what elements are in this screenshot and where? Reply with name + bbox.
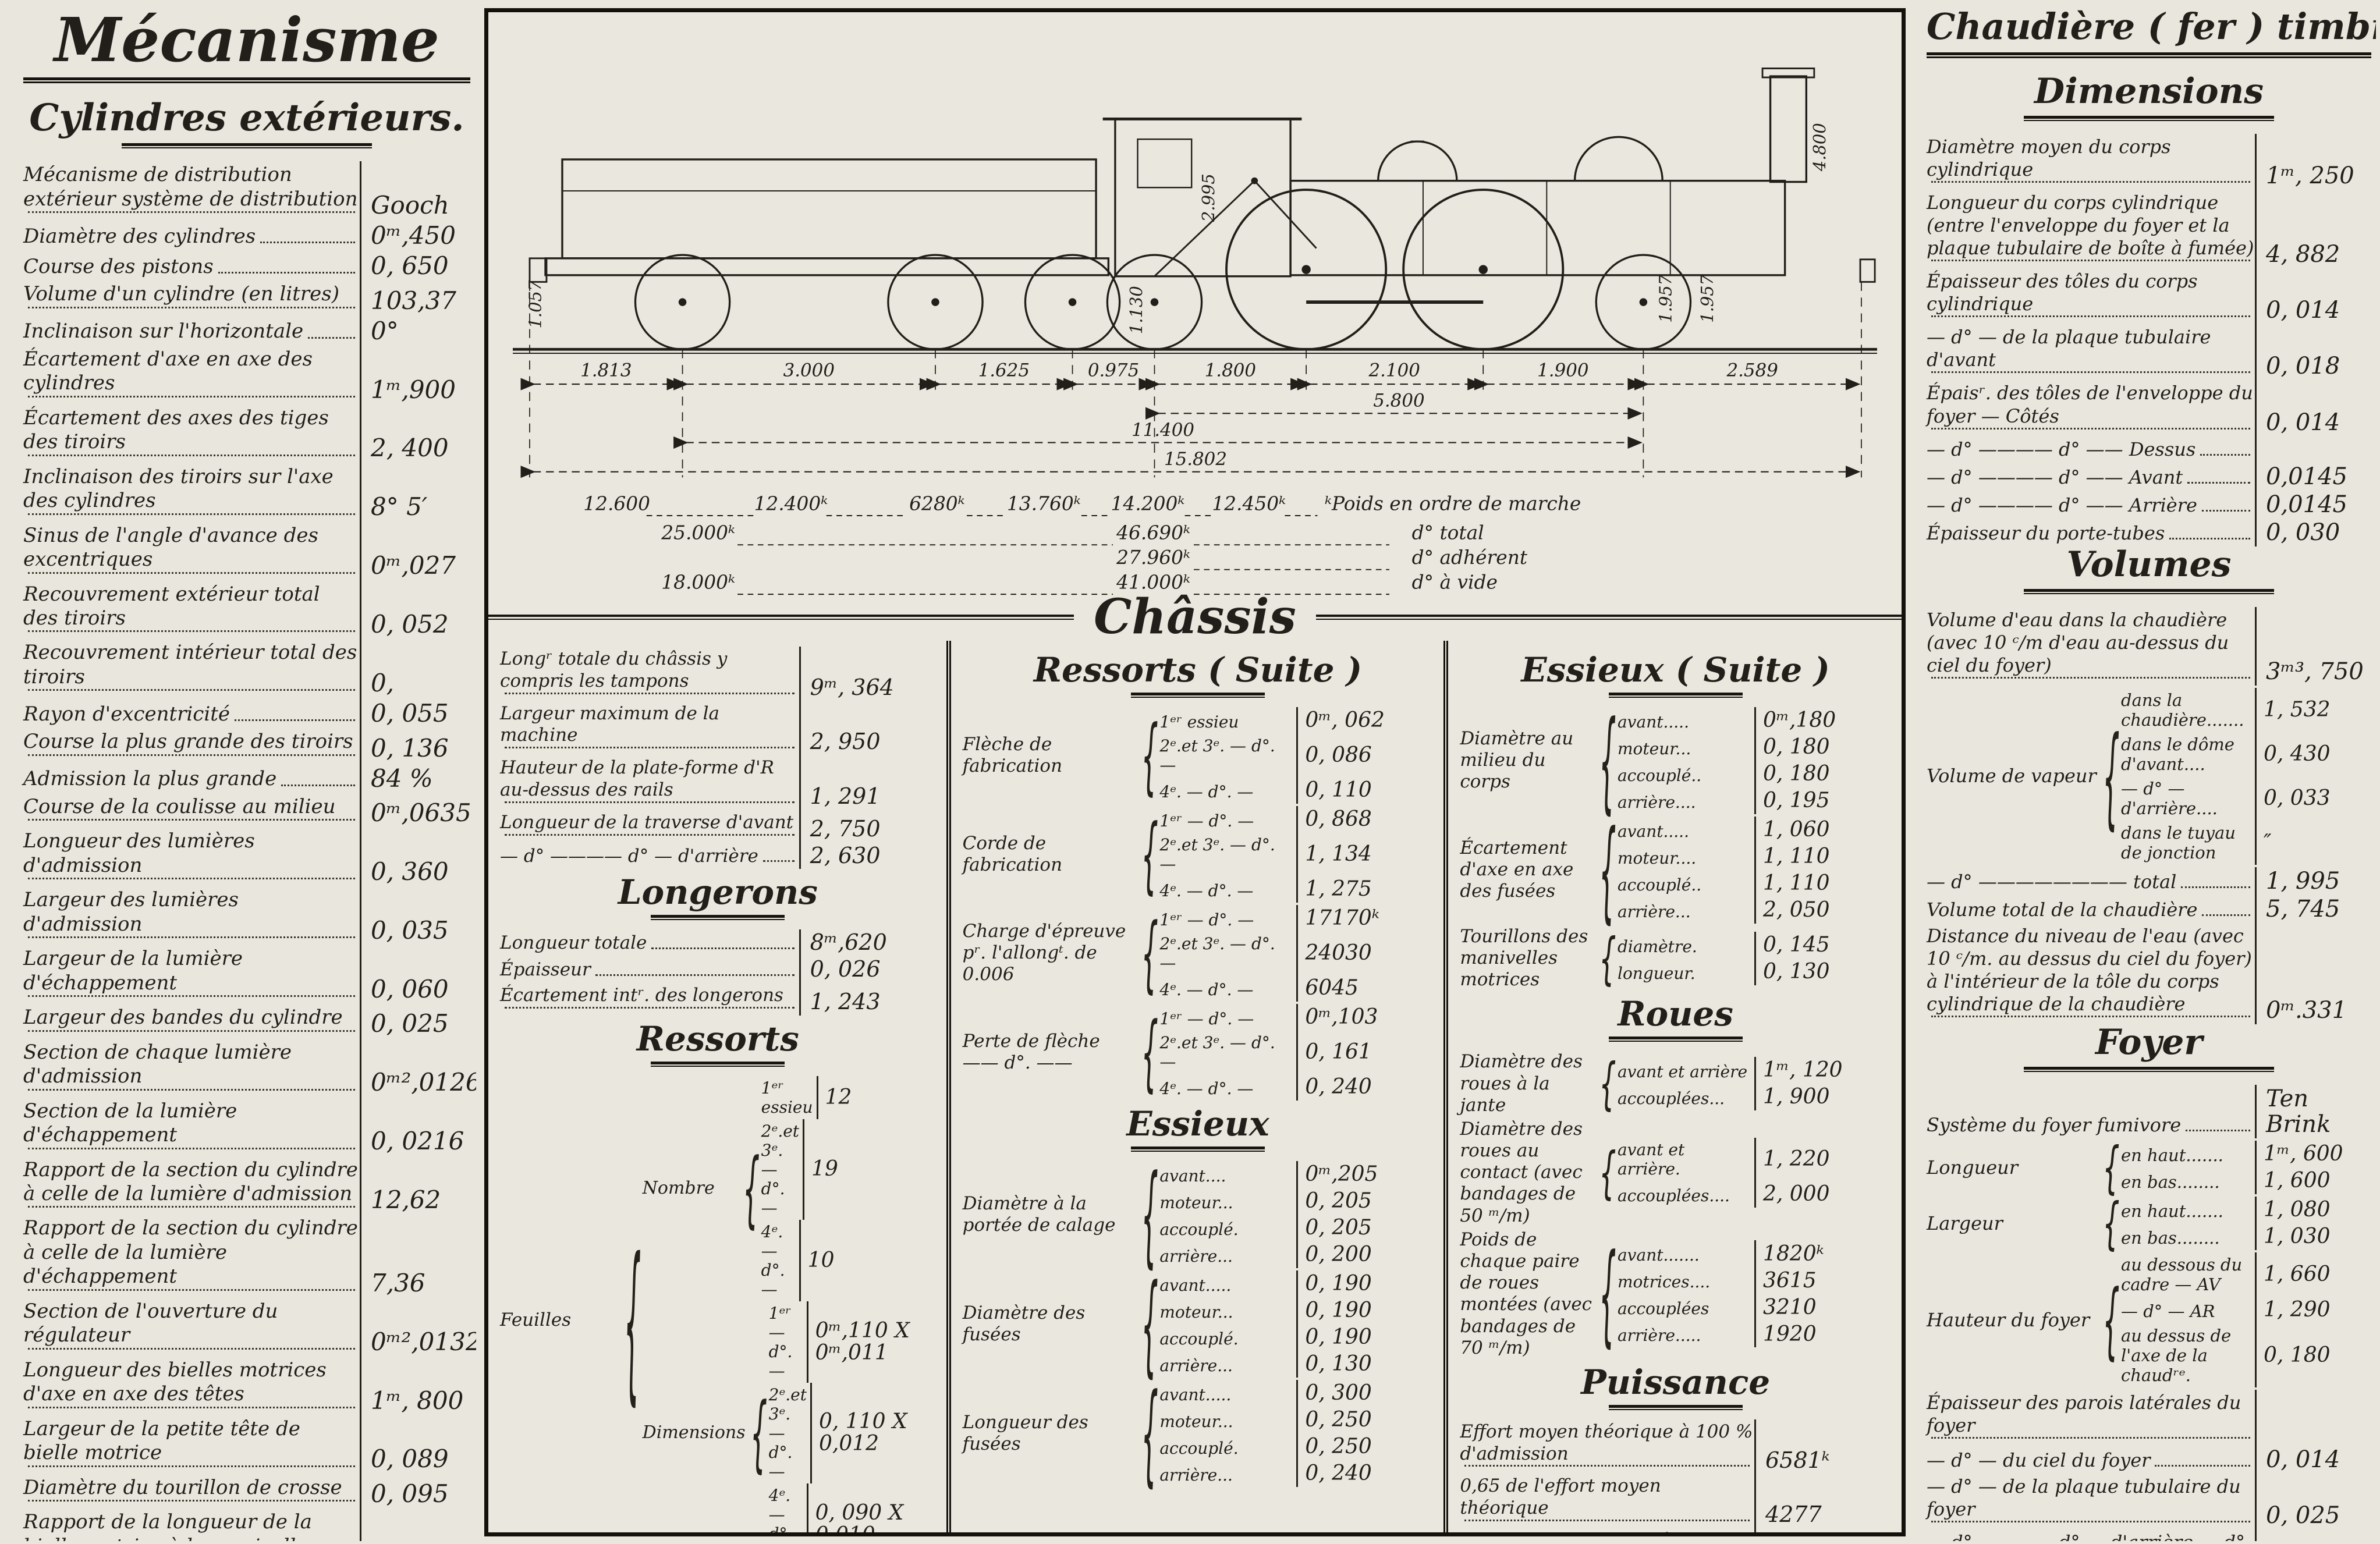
row-value: 7,36 — [360, 1215, 470, 1297]
table-row: Longueur des lumières d'admission 0, 360 — [23, 828, 470, 886]
table-row: Hauteur de la plate-forme d'R au-dessus … — [500, 755, 936, 810]
row-value: 0, 014 — [2255, 268, 2371, 324]
dotted-leader — [763, 860, 794, 862]
table-row: Épaisseur 0, 026 — [500, 956, 936, 983]
group-label: Diamètre des roues à la jante — [1460, 1051, 1598, 1116]
row-value: 8° 5′ — [360, 463, 470, 522]
row-value: 0, — [360, 639, 470, 698]
row-label: Longueur totale — [500, 932, 647, 954]
row-value: 0ᵐ,450 — [360, 220, 470, 250]
row-label: — d° ———— d° —— Avant — [1927, 466, 2183, 489]
brace-item: 4ᵉ. — d°. —0, 110 — [1159, 777, 1433, 804]
row-value — [2255, 1390, 2371, 1446]
brace-item: accouplées3210 — [1618, 1294, 1891, 1321]
brace-item: 2ᵉ.et 3ᵉ. — d°. —1, 134 — [1159, 833, 1433, 876]
group-label: Flèche de fabrication — [963, 734, 1140, 777]
row-value: 5, 53 — [360, 1508, 470, 1541]
brace-item: accouplé..0, 180 — [1618, 761, 1891, 787]
table-row: Effort moyen théorique à 100 % d'admissi… — [1460, 1419, 1891, 1474]
group-label: Hauteur du foyer — [1927, 1309, 2101, 1331]
row-value: 0, 035 — [360, 886, 470, 945]
weights-note: ᵏPoids en ordre de marche — [1325, 492, 1581, 514]
chassis-col-roues-puissance: Essieux ( Suite ) Diamètre au milieu du … — [1443, 641, 1902, 1536]
dim-label: 0.975 — [1088, 360, 1139, 381]
divider — [1316, 615, 1902, 620]
brace-icon: { — [1598, 805, 1618, 934]
table-row: — d° ———— d° —— Dessus — [1927, 436, 2371, 463]
row-label: Course des pistons — [23, 255, 214, 279]
dotted-leader — [28, 396, 355, 397]
row-value: 0, 0216 — [360, 1098, 470, 1156]
brace-icon: { — [1598, 925, 1618, 991]
ressorts-suite-title: Ressorts ( Suite ) — [963, 652, 1434, 688]
table-row: Diamètre moyen du corps cylindrique 1ᵐ, … — [1927, 134, 2371, 190]
mecanisme-table: Mécanisme de distribution extérieur syst… — [23, 161, 470, 1541]
brace-icon: { — [1598, 1230, 1618, 1358]
dotted-leader — [28, 1089, 355, 1091]
calage-group: Diamètre à la portée de calage { avant..… — [963, 1161, 1434, 1268]
dotted-leader — [28, 630, 355, 632]
brace-item: dans le tuyau de jonction″ — [2121, 821, 2371, 865]
group-label: Dimensions — [643, 1422, 749, 1443]
table-row: Longueur de la traverse d'avant 2, 750 — [500, 810, 936, 843]
brace-item: accouplées...1, 900 — [1618, 1084, 1891, 1110]
dotted-leader — [1931, 428, 2250, 430]
vertical-dim: 1.130 — [1126, 286, 1146, 334]
volumes-title: Volumes — [1927, 546, 2371, 583]
fusees-diam-group: Diamètre des fusées { avant.....0, 190mo… — [963, 1270, 1434, 1378]
table-row: Épaisseur du porte-tubes 0, 030 — [1927, 519, 2371, 546]
row-label: Recouvrement intérieur total des tiroirs — [23, 641, 360, 689]
row-label: Largeur des bandes du cylindre — [23, 1006, 343, 1030]
row-label: — d° ———— d° —— Dessus — [1927, 438, 2195, 461]
row-label: Volume d'eau dans la chaudière (avec 10 … — [1927, 609, 2255, 677]
dotted-leader — [2202, 510, 2250, 512]
row-label: — d° ———— d° —— Arrière — [1927, 494, 2197, 517]
brace-item: arrière.....1920 — [1618, 1321, 1891, 1347]
table-row: Inclinaison sur l'horizontale 0° — [23, 315, 470, 346]
group-label: Poids de chaque paire de roues montées (… — [1460, 1229, 1598, 1359]
dim-total: 15.802 — [1164, 449, 1227, 470]
group-label: Diamètre à la portée de calage — [963, 1193, 1140, 1236]
dotted-leader — [28, 936, 355, 938]
brace-item: au dessus de l'axe de la chaudʳᵉ.0, 180 — [2121, 1323, 2371, 1387]
chassis-col-ressorts-essieux: Ressorts ( Suite ) Flèche de fabrication… — [946, 641, 1444, 1536]
row-label: Largeur de la petite tête de bielle motr… — [23, 1417, 360, 1465]
row-label: — d° — du ciel du foyer — [1927, 1449, 2150, 1472]
axle-weight: 12.600 — [583, 492, 650, 514]
tourillons-group: Tourillons des manivelles motrices { dia… — [1460, 926, 1891, 991]
row-value: 0,0145 — [2255, 463, 2371, 491]
dotted-leader — [28, 513, 355, 515]
brace-icon: { — [623, 1220, 643, 1421]
brace-icon: { — [1598, 1050, 1618, 1116]
dotted-leader — [28, 1206, 355, 1208]
axle-weight: 6280ᵏ — [909, 492, 965, 514]
brace-item: 4ᵉ. — d°. —1, 275 — [1159, 876, 1433, 903]
divider — [2024, 1067, 2274, 1072]
row-value: 0, 025 — [2255, 1474, 2371, 1529]
table-row: Largeur maximum de la machine 2, 950 — [500, 701, 936, 756]
brace-item: 2ᵉ.et 3ᵉ. — d°. —24030 — [1159, 932, 1433, 975]
rear-buffer — [1860, 260, 1875, 282]
vertical-dim: 1.957 — [1697, 274, 1717, 322]
table-row: Sinus de l'angle d'avance des excentriqu… — [23, 522, 470, 581]
table-row: Épaisseur des parois latérales du foyer — [1927, 1390, 2371, 1446]
dotted-leader — [2169, 538, 2250, 539]
ressorts-title: Ressorts — [500, 1021, 936, 1057]
brace-item: moteur...0, 205 — [1159, 1188, 1433, 1215]
row-value: 0, 060 — [360, 945, 470, 1004]
dotted-leader — [28, 1407, 355, 1408]
brace-item: arrière...0, 200 — [1159, 1241, 1433, 1268]
row-value: 84 % — [360, 763, 470, 793]
brace-item: 1ᵉʳ — d°. —0ᵐ,103 — [1159, 1004, 1433, 1031]
dotted-leader — [28, 1289, 355, 1291]
brace-item: moteur....1, 110 — [1618, 843, 1891, 870]
jante-group: Diamètre des roues à la jante { avant et… — [1460, 1051, 1891, 1116]
longerons-title: Longerons — [500, 875, 936, 910]
dotted-leader — [2155, 1465, 2250, 1467]
weight-label: d° total — [1412, 522, 1484, 544]
row-label: Section de chaque lumière d'admission — [23, 1041, 360, 1089]
row-label: Rayon d'excentricité — [23, 702, 230, 726]
row-value: 0, 014 — [2255, 380, 2371, 436]
essieux-suite-title: Essieux ( Suite ) — [1460, 652, 1891, 688]
dotted-leader — [28, 211, 355, 213]
brace-icon: { — [2101, 1271, 2121, 1368]
tender-frame — [545, 258, 1108, 275]
row-label: Longueur des lumières d'admission — [23, 829, 360, 878]
group-label: Nombre — [643, 1178, 742, 1199]
row-label: Largeur maximum de la machine — [500, 703, 799, 747]
row-label: Longueur de la traverse d'avant — [500, 812, 793, 834]
dim-label: 1.813 — [580, 360, 632, 381]
vertical-dim: 1.957 — [1656, 274, 1676, 322]
row-value — [2255, 436, 2371, 463]
dotted-leader — [28, 1348, 355, 1350]
row-label: — d° — de la plaque tubulaire du foyer — [1927, 1475, 2255, 1521]
dotted-leader — [505, 693, 794, 694]
row-value: 4, 882 — [2255, 190, 2371, 268]
row-label: Sinus de l'angle d'avance des excentriqu… — [23, 524, 360, 572]
locomotive-drawing-svg: 1.813 3.000 1.625 0.975 1.800 2.100 1.90… — [488, 12, 1902, 597]
brace-item: avant.....0ᵐ,180 — [1618, 707, 1891, 734]
nombre-group: Nombre { 1ᵉʳ essieu122ᵉ.et 3ᵉ. — d°. —19… — [643, 1076, 936, 1301]
brace-item: 4ᵉ. — d°. —10 — [761, 1220, 936, 1301]
table-row: Largeur de la lumière d'échappement 0, 0… — [23, 945, 470, 1004]
brace-item: 2ᵉ.et 3ᵉ. — d°. —0, 086 — [1159, 734, 1433, 777]
table-row: — d° ———— d° — d'arrière 2, 630 — [500, 843, 936, 869]
dotted-leader — [595, 974, 794, 976]
row-value: 8ᵐ,620 — [799, 929, 936, 956]
group-label: Volume de vapeur — [1927, 765, 2101, 787]
table-row: Course des pistons 0, 650 — [23, 250, 470, 281]
brace-item: arrière...0, 130 — [1159, 1351, 1433, 1378]
brace-item: 1ᵉʳ — d°. —0, 868 — [1159, 806, 1433, 833]
chaudiere-title: Chaudière ( fer ) timbre 10 kilᵉˢ. — [1927, 7, 2371, 47]
dotted-leader — [2187, 482, 2250, 484]
row-value: 2, 630 — [799, 843, 936, 869]
brace-item: en haut.......1ᵐ, 600 — [2121, 1141, 2371, 1167]
row-label: Longʳ totale du châssis y compris les ta… — [500, 648, 799, 693]
dotted-leader — [28, 1148, 355, 1149]
table-row: Diamètre des cylindres 0ᵐ,450 — [23, 220, 470, 250]
dotted-leader — [28, 307, 355, 308]
row-label: — d° ———— d° — d'arrière — [500, 846, 758, 868]
table-row: Rapport de la longueur de la bielle motr… — [23, 1508, 470, 1541]
row-label: Épaisseur du porte-tubes — [1927, 522, 2165, 545]
row-value: 0ᵐ²,0126 — [360, 1039, 470, 1098]
brace-item: motrices....3615 — [1618, 1267, 1891, 1294]
steam-dome — [1378, 141, 1457, 181]
dotted-leader — [1931, 1437, 2250, 1439]
chassis-title: Châssis — [1094, 593, 1296, 641]
brace-item: avant....0ᵐ,205 — [1159, 1161, 1433, 1188]
dim-label: 3.000 — [783, 360, 835, 381]
brace-item: moteur...0, 190 — [1159, 1297, 1433, 1324]
table-row: Section de l'ouverture du régulateur 0ᵐ²… — [23, 1298, 470, 1357]
volumes-table: — d° ———————— total 1, 995 Volume total … — [1927, 867, 2371, 1024]
cab-window — [1138, 139, 1192, 187]
row-label: Diamètre moyen du corps cylindrique — [1927, 136, 2255, 181]
row-value: 0, 014 — [2255, 1446, 2371, 1474]
table-row: Système du foyer fumivore Ten Brink — [1927, 1085, 2371, 1138]
row-label: Épaisʳ. des tôles de l'enveloppe du foye… — [1927, 382, 2255, 427]
brace-item: 2ᵉ.et 3ᵉ. — d°. —19 — [761, 1119, 936, 1220]
brace-icon: { — [1140, 805, 1159, 903]
row-value: 12,62 — [360, 1156, 470, 1215]
group-label: Diamètre des roues au contact (avec band… — [1460, 1119, 1598, 1227]
axle-weight: 13.760ᵏ — [1007, 492, 1081, 514]
front-buffer — [530, 258, 547, 282]
brace-item: 2ᵉ.et 3ᵉ. — d°. —0, 161 — [1159, 1031, 1433, 1074]
row-label: Admission la plus grande — [23, 767, 276, 791]
mecanisme-panel: Mécanisme Cylindres extérieurs. Mécanism… — [15, 5, 476, 1541]
divider — [651, 915, 785, 920]
largeur-foyer-group: Largeur { en haut.......1, 080en bas....… — [1927, 1197, 2371, 1250]
poids-roues-group: Poids de chaque paire de roues montées (… — [1460, 1229, 1891, 1359]
row-label: Mécanisme de distribution extérieur syst… — [23, 163, 360, 211]
dotted-leader — [28, 878, 355, 879]
dotted-leader — [2186, 1130, 2250, 1131]
divider — [2024, 589, 2274, 594]
group-label: Corde de fabrication — [963, 833, 1140, 876]
locomotive-record-sheet: Mécanisme Cylindres extérieurs. Mécanism… — [0, 0, 2380, 1544]
table-row: Largeur de la petite tête de bielle motr… — [23, 1415, 470, 1474]
brace-item: en bas........1, 600 — [2121, 1167, 2371, 1194]
chaudiere-panel: Chaudière ( fer ) timbre 10 kilᵉˢ. Dimen… — [1918, 5, 2376, 1541]
row-value: 4277 — [1754, 1474, 1891, 1528]
brace-item: avant.....1, 060 — [1618, 817, 1891, 843]
row-label: Rapport du poids adhérent (P) aux 0,65 d… — [1460, 1530, 1754, 1536]
row-label: Longueur du corps cylindrique (entre l'e… — [1927, 191, 2255, 260]
brace-icon: { — [1140, 707, 1159, 804]
table-row: Longʳ totale du châssis y compris les ta… — [500, 647, 936, 701]
brace-icon: { — [2101, 712, 2121, 840]
row-value: 1ᵐ, 800 — [360, 1357, 470, 1415]
divider — [2024, 116, 2274, 121]
group-label: Perte de flèche —— d°. —— — [963, 1031, 1140, 1074]
charge-group: Charge d'épreuve pʳ. l'allongᵗ. de 0.006… — [963, 905, 1434, 1002]
brace-item: 1ᵉʳ essieu0ᵐ, 062 — [1159, 707, 1433, 734]
brace-item: accouplé.0, 250 — [1159, 1433, 1433, 1460]
row-value: 0, 095 — [360, 1474, 470, 1508]
dotted-leader — [1464, 1465, 1750, 1467]
table-row: Longueur des bielles motrices d'axe en a… — [23, 1357, 470, 1415]
row-value: 0, 136 — [360, 728, 470, 762]
row-label: Système du foyer fumivore — [1927, 1114, 2181, 1137]
brace-icon: { — [1140, 904, 1159, 1002]
divider — [1609, 1037, 1743, 1042]
table-row: Volume d'eau dans la chaudière (avec 10 … — [1927, 607, 2371, 686]
brace-item: 1ᵉʳ essieu12 — [761, 1076, 936, 1119]
row-label: — d° ———— d° — d'arrière — d° — — [1927, 1531, 2255, 1541]
row-value: 6581ᵏ — [1754, 1419, 1891, 1474]
row-value: Gooch — [360, 161, 470, 220]
brace-item: avant et arrière.1, 220 — [1618, 1138, 1891, 1181]
brace-item: — d° — AR1, 290 — [2121, 1297, 2371, 1323]
dotted-leader — [28, 572, 355, 574]
dotted-leader — [2202, 914, 2250, 916]
row-value: 0, 025 — [360, 1004, 470, 1038]
fusees-long-group: Longueur des fusées { avant.....0, 300mo… — [963, 1380, 1434, 1487]
row-value: 0ᵐ,0635 — [360, 793, 470, 828]
row-label: Distance du niveau de l'eau (avec 10 ᶜ/m… — [1927, 925, 2255, 1016]
table-row: — d° ———— d° —— Avant 0,0145 — [1927, 463, 2371, 491]
dotted-leader — [308, 337, 355, 339]
row-label: Course la plus grande des tiroirs — [23, 730, 353, 754]
dotted-leader — [28, 1465, 355, 1467]
divider — [122, 143, 372, 148]
row-label: 0,65 de l'effort moyen théorique — [1460, 1475, 1754, 1520]
row-label: — d° — de la plaque tubulaire d'avant — [1927, 326, 2255, 371]
brace-item: moteur...0, 180 — [1618, 734, 1891, 761]
table-row: Mécanisme de distribution extérieur syst… — [23, 161, 470, 220]
dotted-leader — [505, 834, 794, 836]
dim-label: 1.625 — [978, 360, 1030, 381]
brace-item: accouplé..1, 110 — [1618, 870, 1891, 897]
dotted-leader — [505, 1007, 794, 1009]
row-label: Section de l'ouverture du régulateur — [23, 1300, 360, 1348]
brace-item: 4ᵉ. — d°. —0, 090 X 0,010 — [769, 1483, 944, 1536]
row-label: Écartement des axes des tiges des tiroir… — [23, 406, 360, 455]
row-value: 0, 052 — [360, 581, 470, 640]
row-value: 0, 015 — [2255, 1529, 2371, 1541]
brace-item: accouplé.0, 190 — [1159, 1324, 1433, 1351]
divider — [23, 77, 470, 83]
row-value: 2, 400 — [360, 404, 470, 463]
corde-group: Corde de fabrication { 1ᵉʳ — d°. —0, 868… — [963, 806, 1434, 903]
table-row: Course la plus grande des tiroirs 0, 136 — [23, 728, 470, 762]
row-value: 0, 360 — [360, 828, 470, 886]
chimney — [1771, 76, 1807, 182]
vapeur-group: Volume de vapeur { dans la chaudière....… — [1927, 688, 2371, 865]
brace-icon: { — [1140, 1369, 1159, 1497]
row-label: Volume d'un cylindre (en litres) — [23, 282, 339, 306]
row-value: 2, 950 — [799, 701, 936, 756]
row-label: Épaisseur des parois latérales du foyer — [1927, 1392, 2255, 1437]
table-row: — d° ———————— total 1, 995 — [1927, 867, 2371, 895]
dotted-leader — [1931, 181, 2250, 183]
table-row: Diamètre du tourillon de crosse 0, 095 — [23, 1474, 470, 1508]
row-value: 1, 995 — [2255, 867, 2371, 895]
row-label: Largeur des lumières d'admission — [23, 888, 360, 936]
brace-item: dans le dôme d'avant....0, 430 — [2121, 732, 2371, 776]
fleche-group: Flèche de fabrication { 1ᵉʳ essieu0ᵐ, 06… — [963, 707, 1434, 804]
table-row: Rapport de la section du cylindre à cell… — [23, 1215, 470, 1297]
dotted-leader — [1931, 315, 2250, 317]
table-row: Longueur du corps cylindrique (entre l'e… — [1927, 190, 2371, 268]
dotted-leader — [281, 785, 355, 786]
table-row: — d° — de la plaque tubulaire du foyer 0… — [1927, 1474, 2371, 1529]
puissance-table: Effort moyen théorique à 100 % d'admissi… — [1460, 1419, 1891, 1536]
table-row: — d° — du ciel du foyer 0, 014 — [1927, 1446, 2371, 1474]
brace-item: au dessous du cadre — AV1, 660 — [2121, 1252, 2371, 1297]
row-value: 9ᵐ, 364 — [799, 647, 936, 701]
table-row: — d° ———— d° — d'arrière — d° — 0, 015 — [1927, 1529, 2371, 1541]
row-value: 103,37 — [360, 281, 470, 315]
brace-icon: { — [2101, 1190, 2121, 1256]
brace-icon: { — [1598, 1140, 1618, 1205]
brace-item: longueur.0, 130 — [1618, 959, 1891, 985]
row-label: Recouvrement extérieur total des tiroirs — [23, 583, 360, 631]
dotted-leader — [2181, 886, 2250, 888]
row-value: 0ᵐ.331 — [2255, 923, 2371, 1024]
brace-item: 4ᵉ. — d°. —6045 — [1159, 975, 1433, 1002]
brace-item: arrière...2, 050 — [1618, 897, 1891, 924]
brace-item: avant.......1820ᵏ — [1618, 1240, 1891, 1267]
foyer-title: Foyer — [1927, 1024, 2371, 1061]
row-label: Épaisseur des tôles du corps cylindrique — [1927, 270, 2255, 315]
row-label: Diamètre des cylindres — [23, 225, 256, 249]
row-value: 1ᵐ, 250 — [2255, 134, 2371, 190]
axle-weight: 14.200ᵏ — [1111, 492, 1185, 514]
group-label: Longueur des fusées — [963, 1412, 1140, 1455]
row-label: Diamètre du tourillon de crosse — [23, 1476, 342, 1500]
cylindres-exterieurs-title: Cylindres extérieurs. — [23, 98, 470, 137]
brace-icon: { — [749, 1384, 769, 1481]
weight-label: d° adhérent — [1412, 546, 1528, 569]
table-row: Volume d'un cylindre (en litres) 103,37 — [23, 281, 470, 315]
vertical-dim: 4.800 — [1810, 123, 1829, 172]
dotted-leader — [1931, 1521, 2250, 1522]
dotted-leader — [28, 455, 355, 456]
dotted-leader — [235, 719, 355, 721]
table-row: Écartement d'axe en axe des cylindres 1ᵐ… — [23, 346, 470, 404]
table-row: Inclinaison des tiroirs sur l'axe des cy… — [23, 463, 470, 522]
brace-item: — d° — d'arrière....0, 033 — [2121, 776, 2371, 821]
dim-label: 1.800 — [1205, 360, 1256, 381]
table-row: Largeur des lumières d'admission 0, 035 — [23, 886, 470, 945]
longerons-table: Longueur totale 8ᵐ,620 Épaisseur 0, 026 … — [500, 929, 936, 1015]
hauteur-foyer-group: Hauteur du foyer { au dessous du cadre —… — [1927, 1252, 2371, 1387]
dimensions-group: Dimensions { 1ᵉʳ — d°. —0ᵐ,110 X 0ᵐ,0112… — [643, 1301, 936, 1536]
row-label: Écartement intʳ. des longerons — [500, 985, 783, 1007]
dotted-leader — [1931, 677, 2250, 679]
row-label: Course de la coulisse au milieu — [23, 795, 336, 819]
dotted-leader — [218, 272, 355, 274]
group-label: Écartement d'axe en axe des fusées — [1460, 837, 1598, 903]
group-label: Tourillons des manivelles motrices — [1460, 926, 1598, 991]
row-value: 5, 745 — [2255, 895, 2371, 923]
row-value: 3ᵐ³, 750 — [2255, 607, 2371, 686]
table-row: — d° ———— d° —— Arrière 0,0145 — [1927, 491, 2371, 519]
group-label: Diamètre des fusées — [963, 1302, 1140, 1346]
dotted-leader — [1931, 1016, 2250, 1017]
table-row: 0,65 de l'effort moyen théorique 4277 — [1460, 1474, 1891, 1528]
group-label: Longueur — [1927, 1156, 2101, 1179]
